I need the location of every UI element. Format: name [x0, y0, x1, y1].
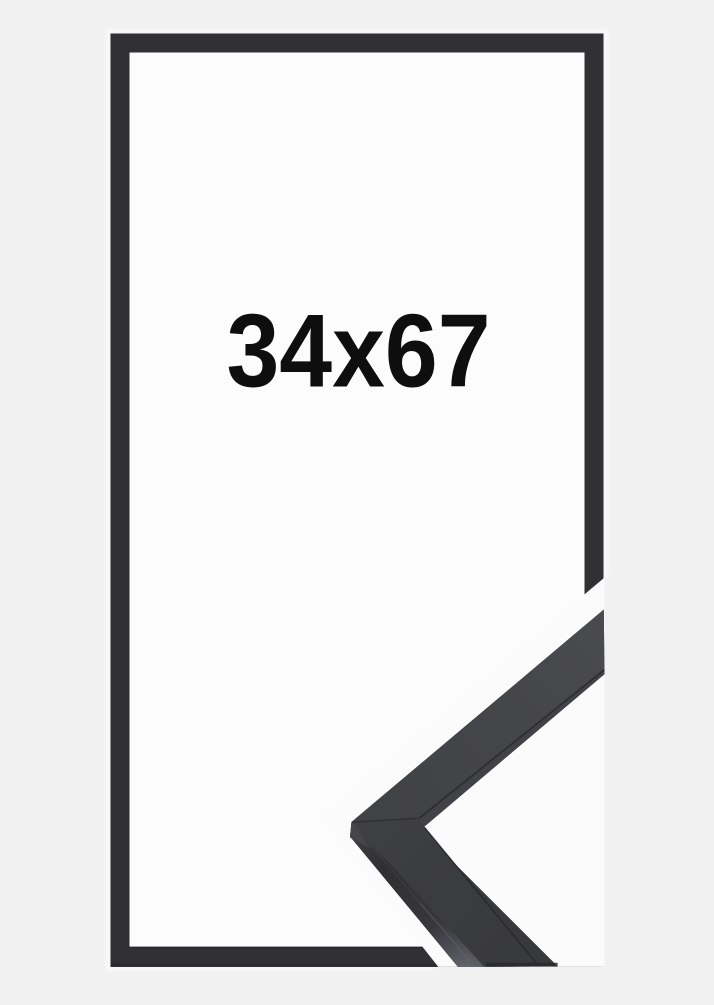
svg-text:34x67: 34x67 — [227, 294, 491, 410]
